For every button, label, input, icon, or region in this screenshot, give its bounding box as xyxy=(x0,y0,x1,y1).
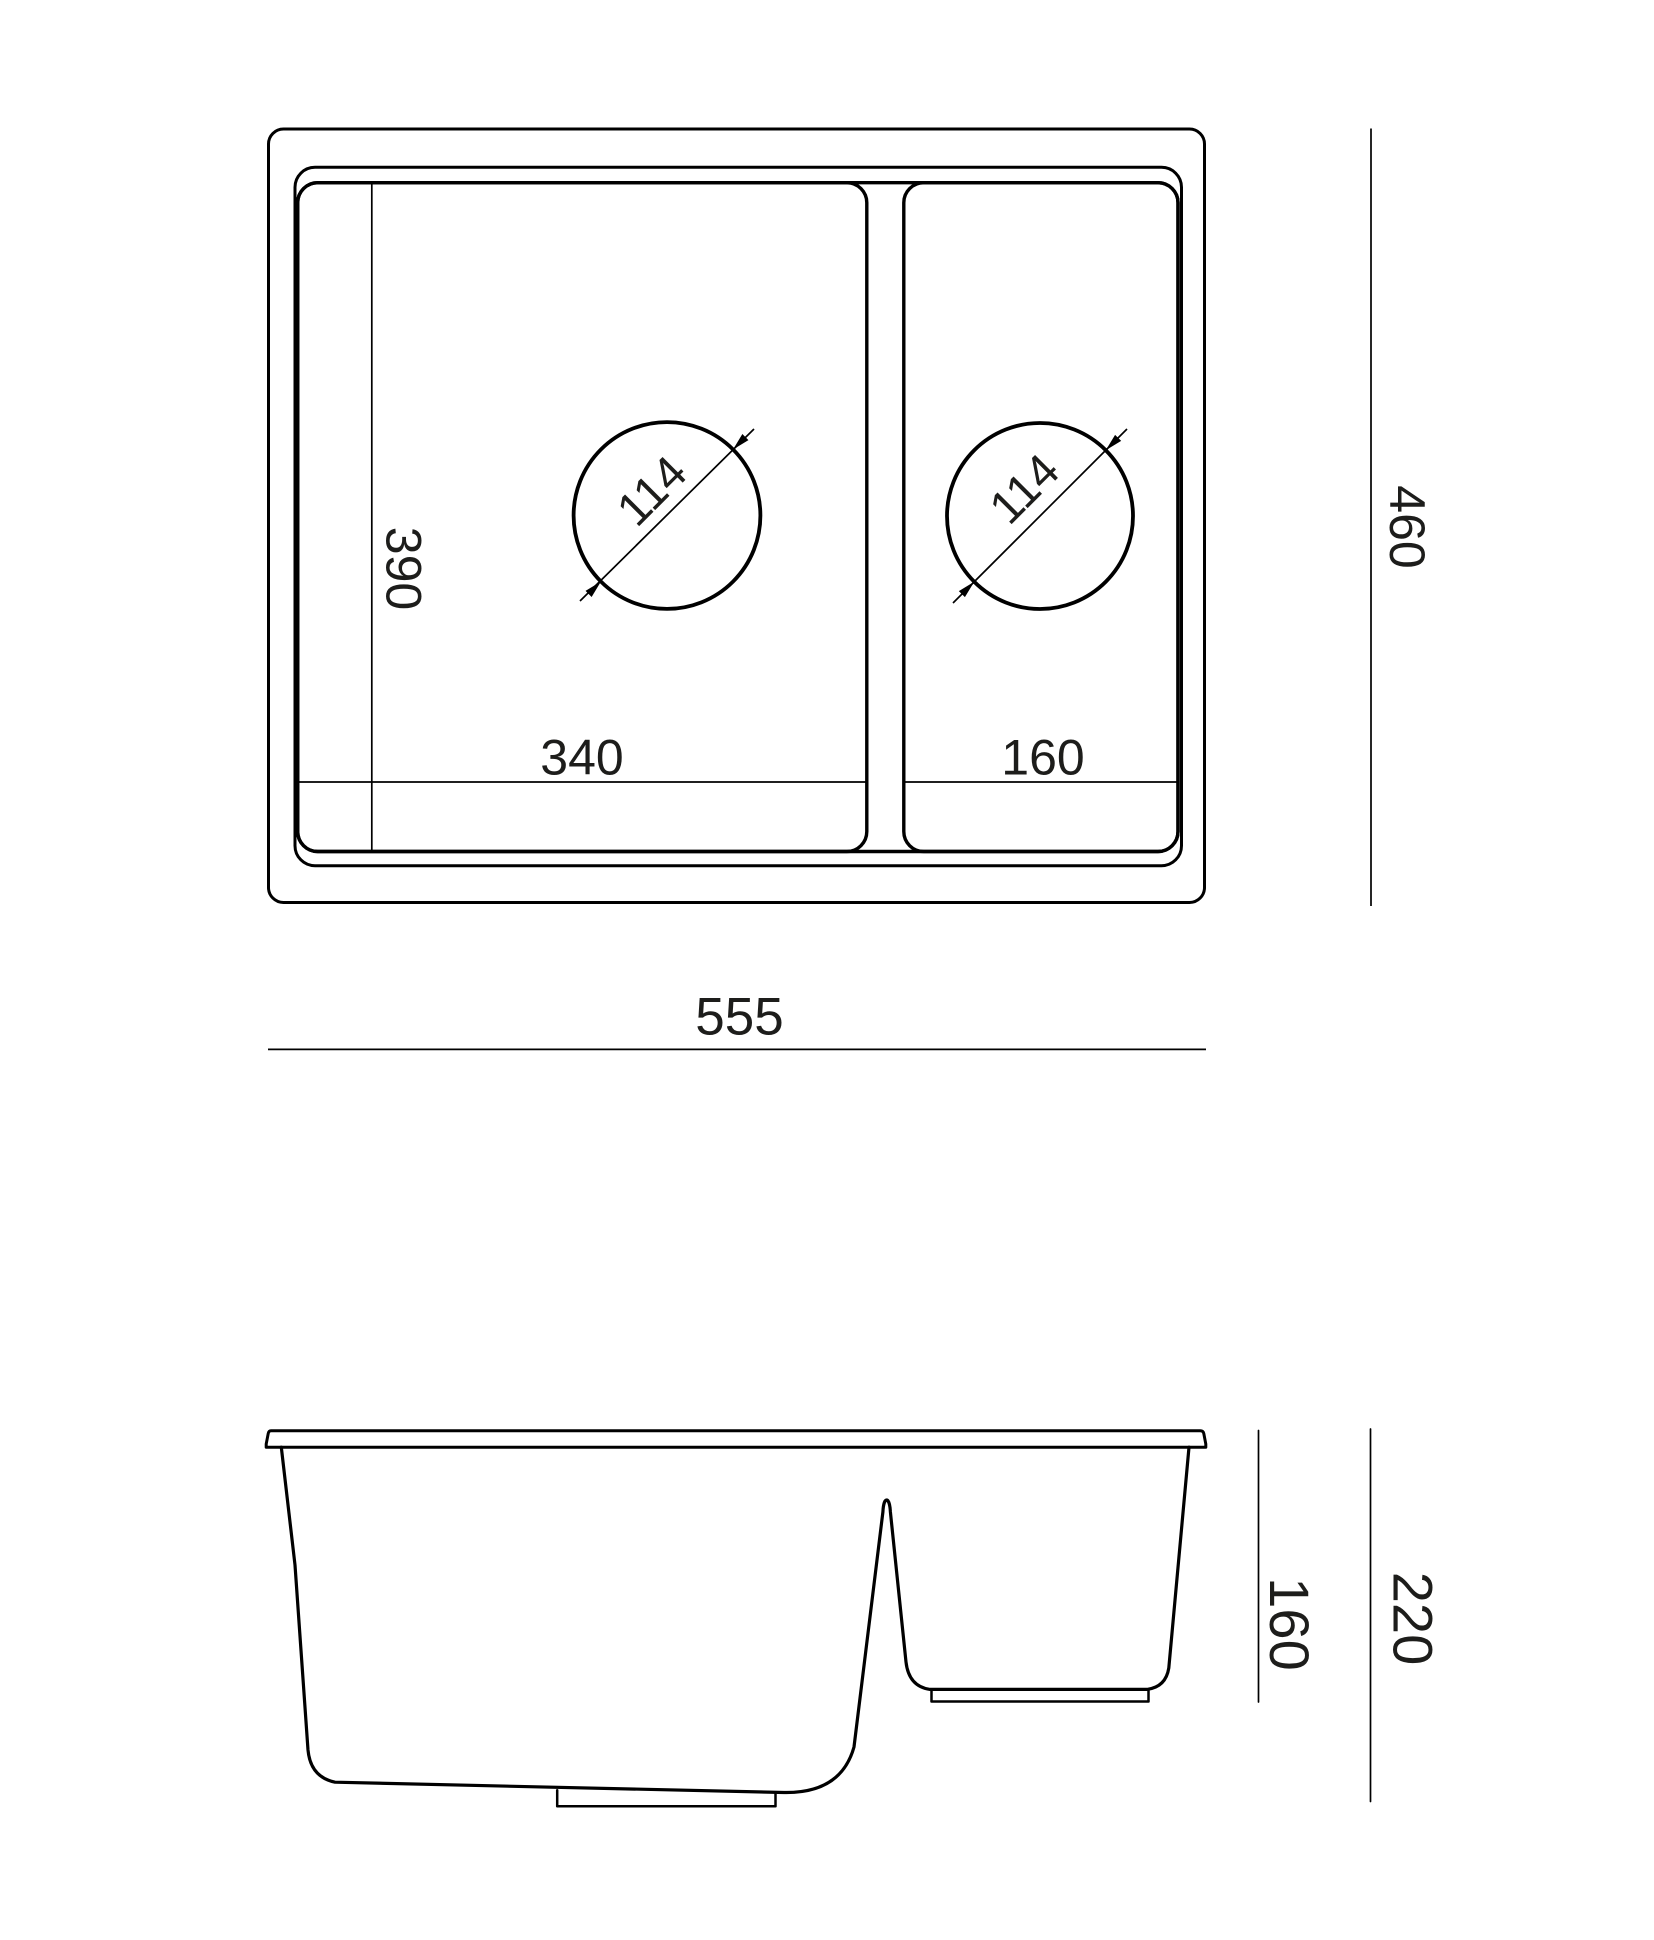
svg-text:460: 460 xyxy=(1379,485,1435,568)
svg-text:555: 555 xyxy=(695,987,783,1046)
svg-text:114: 114 xyxy=(979,443,1069,533)
svg-text:160: 160 xyxy=(1258,1577,1321,1670)
svg-text:390: 390 xyxy=(375,527,431,610)
svg-text:160: 160 xyxy=(1001,730,1084,786)
svg-text:114: 114 xyxy=(606,445,696,535)
svg-text:220: 220 xyxy=(1381,1572,1444,1665)
svg-text:340: 340 xyxy=(540,730,623,786)
